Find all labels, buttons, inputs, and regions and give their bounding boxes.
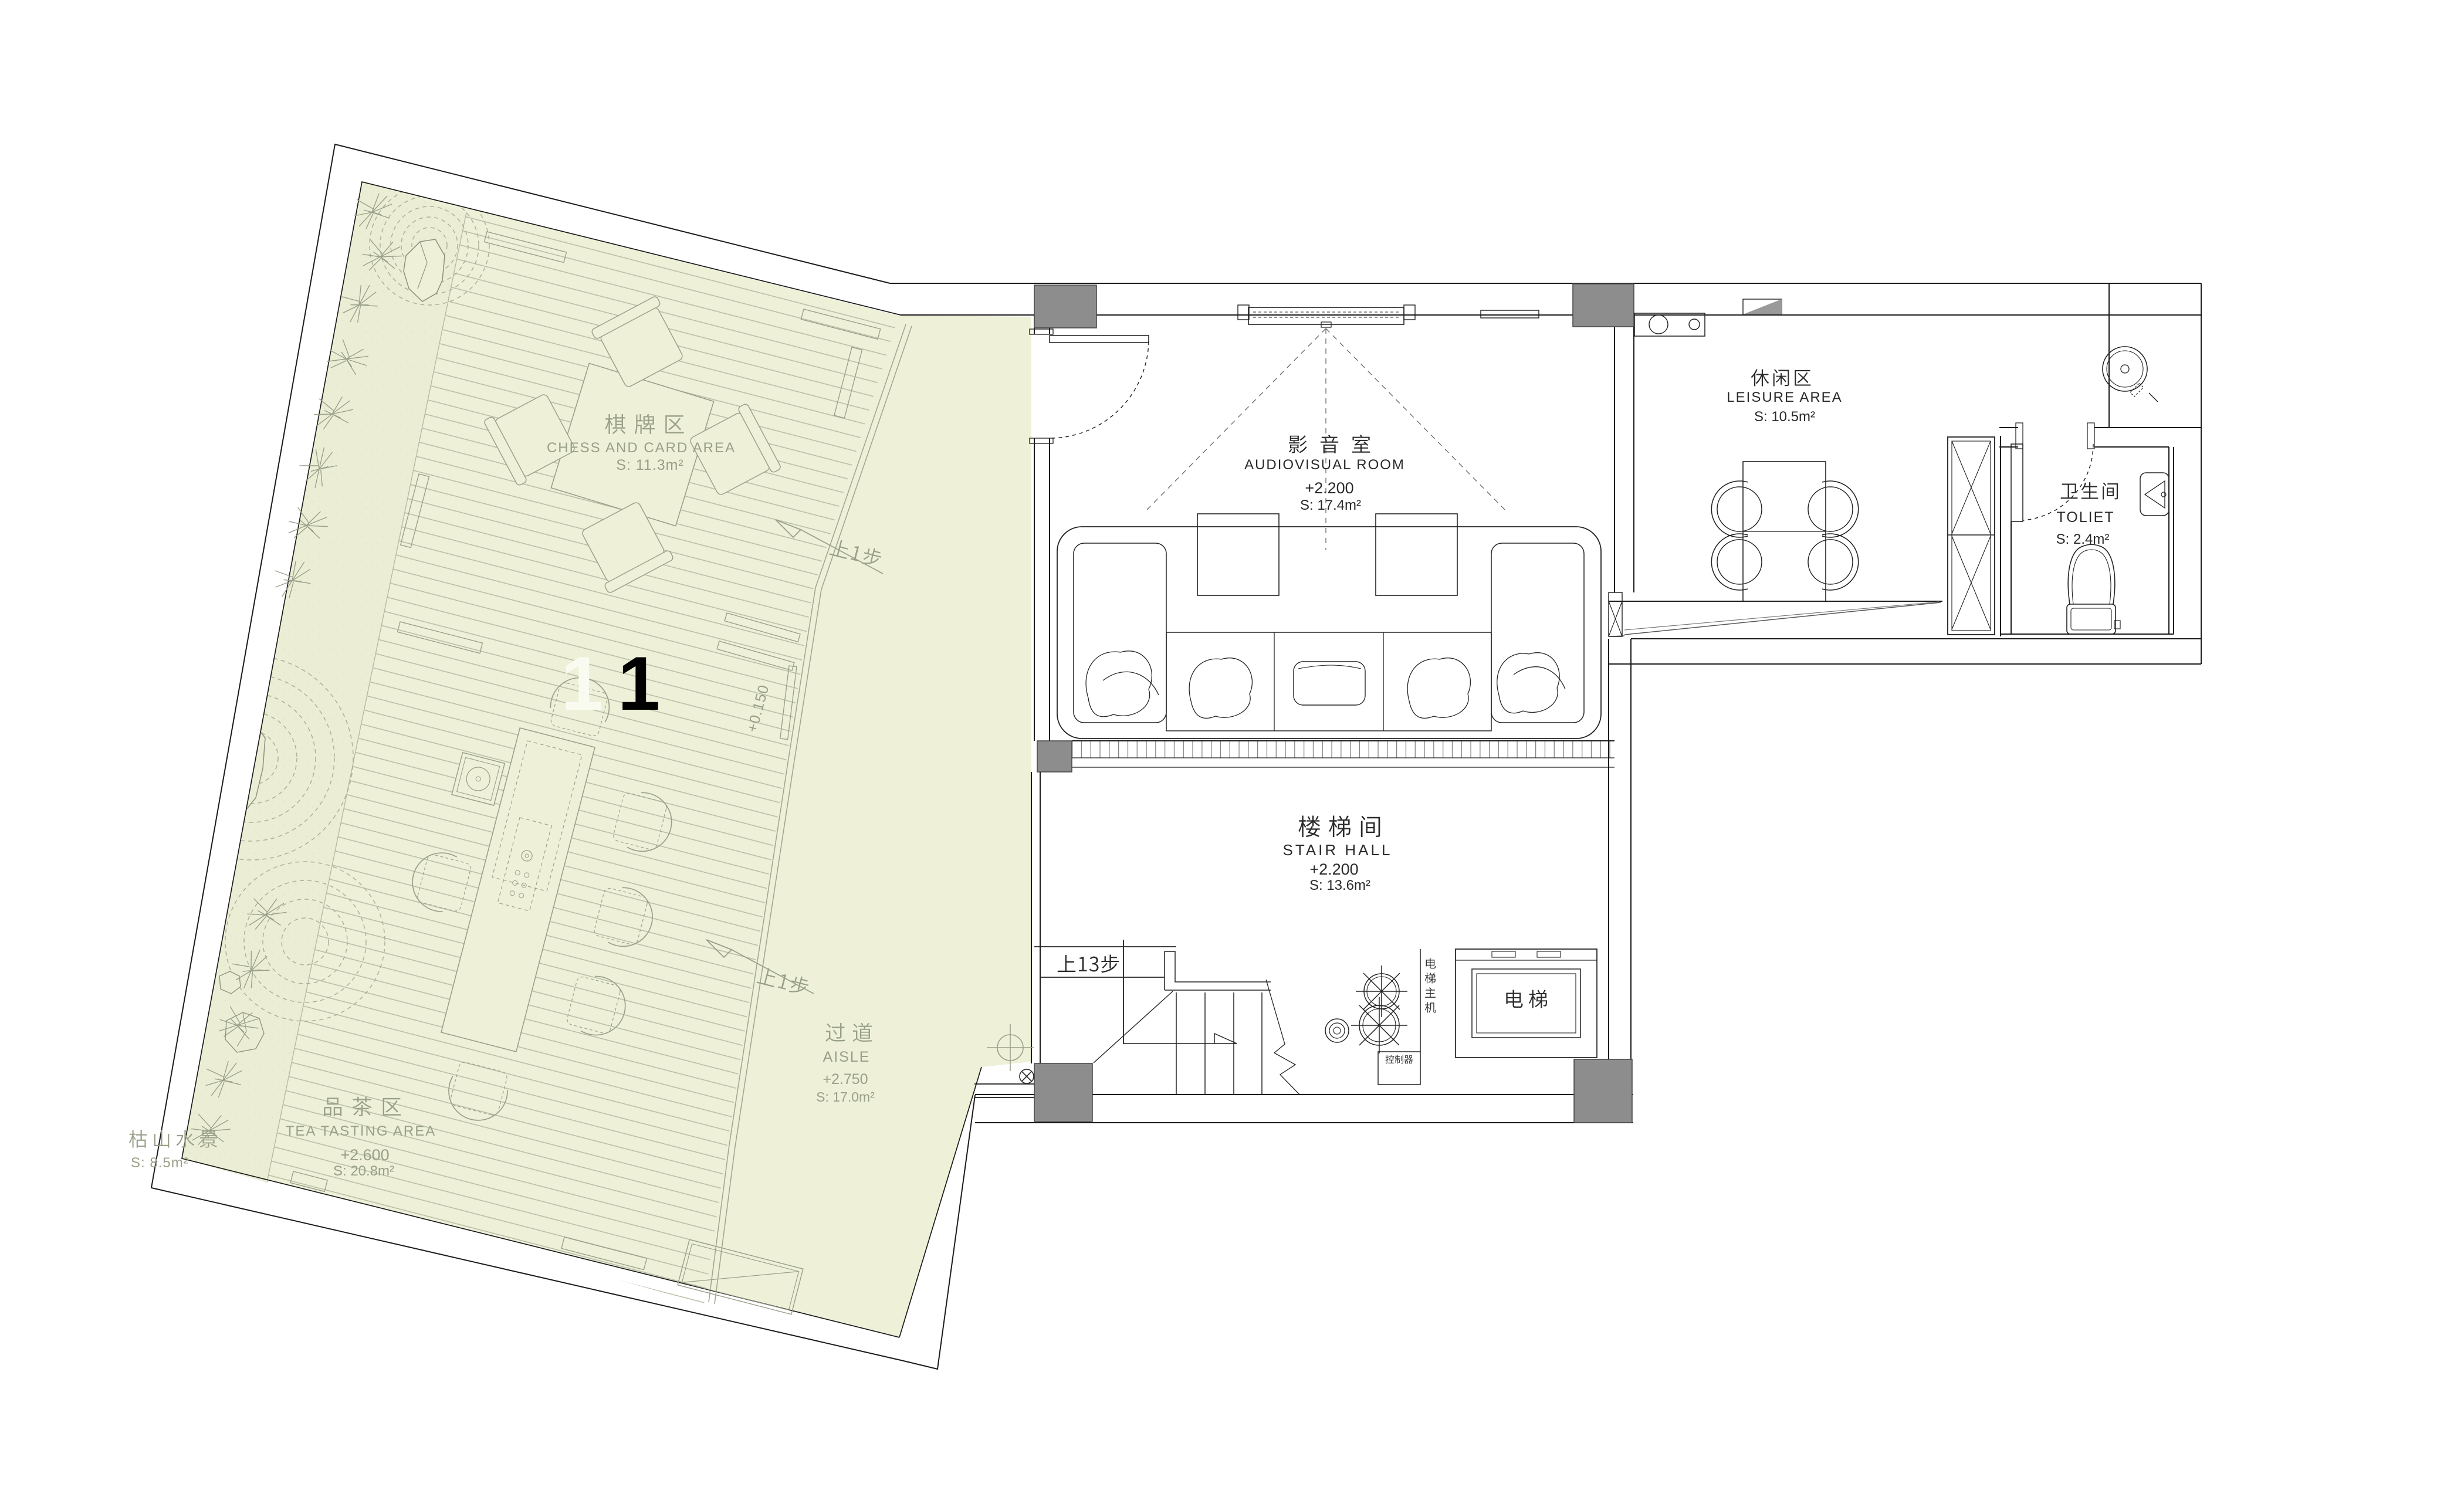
svg-text:CHESS AND CARD AREA: CHESS AND CARD AREA (547, 440, 736, 456)
svg-text:STAIR HALL: STAIR HALL (1283, 841, 1393, 859)
svg-text:S: 20.8m²: S: 20.8m² (333, 1163, 394, 1179)
svg-text:S: 17.4m²: S: 17.4m² (1300, 497, 1361, 513)
svg-text:TEA TASTING AREA: TEA TASTING AREA (286, 1123, 436, 1139)
svg-text:LEISURE AREA: LEISURE AREA (1727, 389, 1842, 405)
svg-text:S: 17.0m²: S: 17.0m² (816, 1089, 875, 1105)
svg-text:TOLIET: TOLIET (2056, 509, 2114, 526)
svg-text:+2.750: +2.750 (823, 1071, 868, 1087)
svg-text:S: 11.3m²: S: 11.3m² (616, 457, 684, 473)
svg-text:S: 10.5m²: S: 10.5m² (1754, 409, 1815, 425)
svg-text:+2.200: +2.200 (1305, 479, 1353, 497)
svg-text:AUDIOVISUAL ROOM: AUDIOVISUAL ROOM (1244, 457, 1405, 473)
svg-text:1: 1 (561, 641, 603, 726)
svg-text:S: 13.6m²: S: 13.6m² (1309, 878, 1370, 893)
svg-text:S: 8.5m²: S: 8.5m² (131, 1155, 189, 1171)
svg-text:AISLE: AISLE (823, 1049, 871, 1065)
svg-text:S: 2.4m²: S: 2.4m² (2056, 531, 2110, 547)
svg-text:+2.600: +2.600 (340, 1146, 389, 1164)
svg-text:+2.200: +2.200 (1309, 860, 1358, 878)
svg-text:1: 1 (618, 641, 660, 726)
